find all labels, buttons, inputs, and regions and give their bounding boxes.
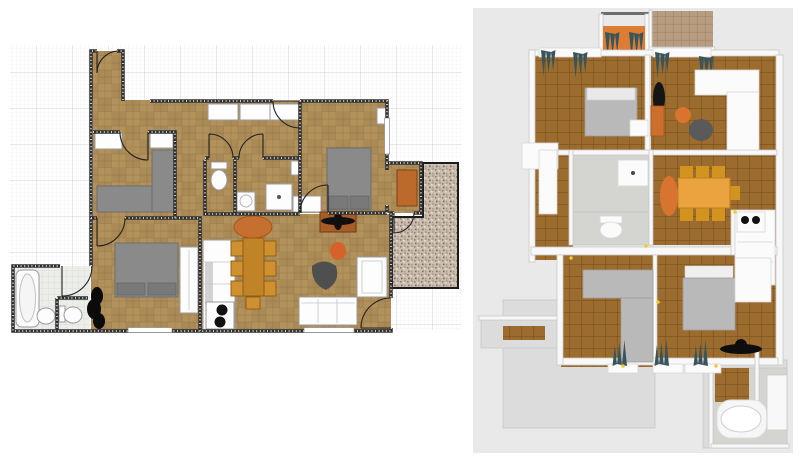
sink[interactable] [291, 161, 299, 175]
toilet[interactable] [211, 170, 227, 190]
bidet[interactable] [37, 308, 55, 324]
bathtub-3d [717, 400, 767, 438]
pillow [148, 283, 176, 295]
dining-chair[interactable] [264, 261, 276, 276]
room-corridor[interactable] [175, 130, 205, 218]
bed-pillows [587, 88, 635, 100]
double-bed-3d [683, 278, 735, 330]
burner [752, 216, 760, 224]
burner [741, 216, 749, 224]
wardrobe-white [735, 258, 771, 302]
dining-chair[interactable] [231, 281, 243, 296]
shower-drain [277, 195, 281, 199]
bath-wing-wall [767, 375, 787, 430]
roof-edge [601, 12, 649, 15]
closet[interactable] [270, 104, 300, 120]
pillow [117, 283, 145, 295]
toilet[interactable] [64, 307, 82, 323]
shower-drain [631, 171, 635, 175]
orange-armchair[interactable] [330, 242, 346, 260]
sofa[interactable] [299, 297, 357, 325]
countertop [205, 262, 213, 304]
toilet-3d [600, 222, 622, 238]
burner [215, 317, 226, 328]
bed-pillows [685, 266, 733, 278]
bean-chair-3d [689, 119, 713, 141]
closet[interactable] [208, 104, 238, 120]
orange-rug[interactable] [234, 216, 272, 238]
pillow [329, 196, 348, 209]
orange-cabinet[interactable] [397, 170, 417, 206]
dresser[interactable] [293, 196, 321, 212]
pillow [350, 196, 369, 209]
dining-chair[interactable] [264, 241, 276, 256]
orange-runner-rug [660, 176, 678, 216]
wardrobe-white [539, 150, 557, 214]
burner [217, 305, 228, 316]
roof-terrace [649, 10, 715, 50]
orange-pouf [675, 107, 691, 123]
plan-2d-canvas[interactable] [0, 0, 473, 474]
corner-sofa[interactable] [152, 150, 174, 212]
closet[interactable] [95, 133, 122, 149]
dining-table[interactable] [243, 238, 264, 296]
dining-chair[interactable] [246, 297, 260, 309]
room-entry[interactable] [90, 51, 123, 101]
corner-sofa[interactable] [97, 186, 153, 212]
orange-cabinet-3d [651, 106, 664, 136]
bathtub-basin [20, 274, 36, 322]
armchair[interactable] [357, 257, 387, 297]
dining-chair[interactable] [264, 281, 276, 296]
nightstand [630, 120, 648, 136]
room-hall[interactable] [93, 100, 205, 132]
dining-chair[interactable] [231, 261, 243, 276]
balcony-rail [479, 316, 559, 320]
view-3d-canvas[interactable] [473, 0, 800, 474]
closet[interactable] [240, 104, 270, 120]
balcony-wood-strip [503, 326, 545, 340]
toilet-tank [211, 162, 227, 169]
stove-3d [737, 212, 765, 232]
floorplan-app [0, 0, 800, 474]
dining-chair[interactable] [231, 241, 243, 256]
